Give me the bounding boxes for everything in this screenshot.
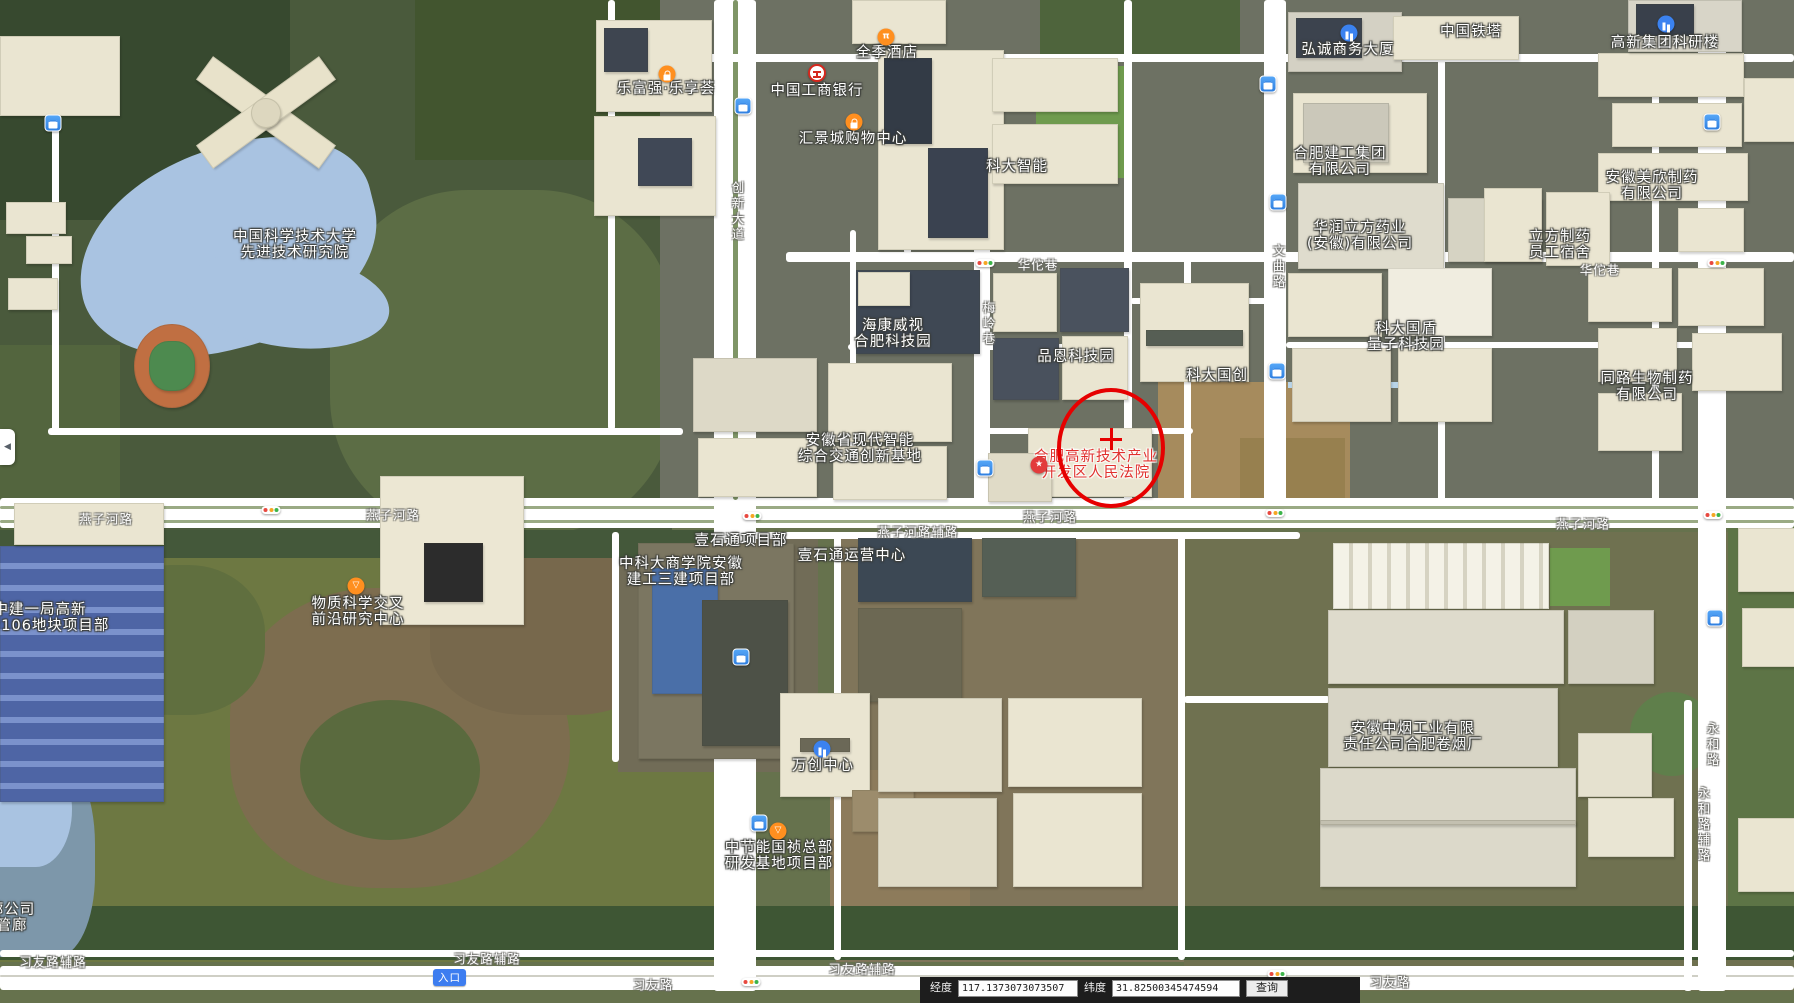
traffic-dot: [1706, 513, 1710, 517]
poi-label-gaoxin-research[interactable]: 高新集团科研楼: [1611, 36, 1720, 52]
building: [604, 28, 648, 72]
traffic-dot: [1717, 513, 1721, 517]
bus-stop-icon[interactable]: [1704, 114, 1721, 131]
poi-label-line: 乐富强·乐享荟: [617, 82, 716, 98]
road-label: 燕子河路: [366, 505, 420, 524]
traffic-dot: [989, 261, 993, 265]
flask-poi-icon[interactable]: ▽: [770, 823, 787, 840]
poi-label-line: (安徽)有限公司: [1307, 237, 1413, 253]
poi-label-zhongjian-project[interactable]: 中建一局高新202106地块项目部: [0, 603, 109, 634]
traffic-dot: [978, 261, 982, 265]
building: [858, 608, 962, 702]
building: [993, 273, 1057, 332]
bus-glyph: [1711, 615, 1720, 623]
road-label: 习友路: [1370, 972, 1411, 991]
road-label: 燕子河路: [79, 509, 133, 528]
traffic-dot: [745, 514, 749, 518]
shop-poi-icon[interactable]: [659, 66, 676, 83]
building: [1013, 793, 1142, 887]
bus-glyph: [1264, 81, 1273, 89]
coordinate-query-bar: 经度 纬度 查询: [920, 977, 1360, 1003]
building: [852, 0, 946, 44]
road-segment: [1684, 700, 1692, 991]
road-label: 习友路辅路: [19, 952, 87, 971]
poi-label-line: 科大国盾: [1367, 322, 1445, 338]
tower-glyph: [1346, 31, 1349, 39]
road-label: 习友路辅路: [828, 959, 896, 978]
bus-stop-icon[interactable]: [751, 815, 768, 832]
poi-label-line: 华润立方药业: [1307, 221, 1413, 237]
road-label: 燕子河路: [1556, 514, 1610, 533]
building: [993, 338, 1059, 400]
road-label: 燕子河路辅路: [877, 522, 958, 541]
building: [1588, 798, 1674, 857]
bag-handle: [665, 70, 671, 75]
building: [1598, 53, 1744, 97]
traffic-dot: [1273, 511, 1277, 515]
traffic-dot: [755, 980, 759, 984]
building: [982, 538, 1076, 597]
poi-label-line: 有限公司: [1294, 163, 1387, 179]
road-label-vertical: 梅岭巷: [979, 301, 998, 348]
traffic-dot: [983, 261, 987, 265]
traffic-dot: [1715, 261, 1719, 265]
bus-glyph: [1274, 199, 1283, 207]
bus-glyph: [49, 120, 58, 128]
poi-label-line: 海康威视: [854, 319, 932, 335]
poi-label-line: 壹石通项目部: [695, 534, 788, 550]
poi-label-line: 有限公司: [1601, 388, 1694, 404]
poi-label-keda-guochuang[interactable]: 科大国创: [1186, 369, 1248, 385]
poi-label-line: 安徽省现代智能: [798, 434, 922, 450]
poi-label-traffic-innovation-base[interactable]: 安徽省现代智能综合交通创新基地: [798, 434, 922, 465]
traffic-dot: [1268, 511, 1272, 515]
poi-label-line: 前沿研究中心: [312, 613, 405, 629]
road-segment: [48, 428, 683, 435]
poi-label-line: 先进技术研究院: [233, 246, 357, 262]
road-segment: [0, 966, 1794, 990]
building: [702, 600, 788, 746]
poi-label-line: 壹石通运营中心: [798, 549, 907, 565]
icbc-bank-icon[interactable]: [808, 64, 826, 82]
tower-glyph: [819, 747, 822, 755]
poi-label-line: 中国科学技术大学: [233, 230, 357, 246]
poi-label-line: 202106地块项目部: [0, 619, 109, 635]
bus-glyph: [737, 654, 746, 662]
poi-label-pinen-park[interactable]: 品恩科技园: [1037, 350, 1115, 366]
poi-label-ustc-institute[interactable]: 中国科学技术大学先进技术研究院: [233, 230, 357, 261]
traffic-light-icon: [976, 259, 995, 267]
poi-label-lefuqiang-plaza[interactable]: 乐富强·乐享荟: [617, 82, 716, 98]
tower-glyph: [1663, 22, 1666, 30]
poi-label-line: 建工三建项目部: [619, 573, 743, 589]
poi-label-yishitong-center[interactable]: 壹石通运营中心: [798, 549, 907, 565]
poi-label-line: 合肥科技园: [854, 335, 932, 351]
building: [1692, 333, 1782, 391]
road-label-vertical: 永和路: [1703, 722, 1722, 769]
bus-glyph: [981, 465, 990, 473]
building: [828, 363, 952, 442]
traffic-light-icon: [262, 506, 281, 514]
building: [878, 698, 1002, 792]
building: [0, 36, 120, 116]
building: [1578, 733, 1652, 797]
poi-label-hongcheng-tower[interactable]: 弘诚商务大厦: [1302, 43, 1395, 59]
panel-collapse-button[interactable]: ◀: [0, 429, 15, 465]
building: [1060, 268, 1129, 332]
building: [878, 798, 997, 887]
building-poi-icon[interactable]: [814, 741, 831, 758]
building: [1738, 818, 1794, 892]
traffic-light-icon: [1266, 509, 1285, 517]
collapse-arrow-icon: ◀: [4, 442, 11, 452]
poi-label-line: 责任公司合肥卷烟厂: [1343, 738, 1483, 754]
poi-label-line: 汇景城购物中心: [799, 132, 908, 148]
poi-label-line: 高新集团科研楼: [1611, 36, 1720, 52]
road-label: 华佗巷: [1018, 255, 1059, 274]
road-segment: [0, 950, 1794, 957]
building: [1292, 348, 1391, 422]
shop-poi-icon[interactable]: [846, 114, 863, 131]
poi-label-line: 中节能国祯总部: [725, 841, 834, 857]
building: [1742, 608, 1794, 667]
road-segment: [1178, 532, 1185, 960]
poi-label-line: 中国工商银行: [771, 84, 864, 100]
bus-stop-icon[interactable]: [1269, 363, 1286, 380]
traffic-dot: [1275, 972, 1279, 976]
traffic-light-icon: [743, 512, 762, 520]
poi-label-line: 万创中心: [792, 759, 854, 775]
building: [1744, 78, 1794, 142]
poi-label-line: 弘诚商务大厦: [1302, 43, 1395, 59]
building: [6, 202, 66, 234]
bus-stop-icon[interactable]: [1707, 610, 1724, 627]
poi-label-material-science-center[interactable]: 物质科学交叉前沿研究中心: [312, 597, 405, 628]
building-poi-icon[interactable]: [1341, 25, 1358, 42]
poi-label-hikvision-park[interactable]: 海康威视合肥科技园: [854, 319, 932, 350]
poi-label-line: 管廊: [0, 919, 35, 935]
building: [424, 543, 483, 602]
road-segment: [786, 252, 1794, 262]
bus-glyph: [755, 820, 764, 828]
map-app: { "map": { "poi_labels": [ {"name":"ustc…: [0, 0, 1794, 991]
poi-label-china-tower[interactable]: 中国铁塔: [1440, 25, 1502, 41]
bag-body: [851, 122, 858, 128]
poi-label-line: 中科大商学院安徽: [619, 557, 743, 573]
poi-label-tonglu-bio[interactable]: 同路生物制药有限公司: [1601, 372, 1694, 403]
longitude-input[interactable]: [958, 980, 1078, 997]
terrain-patch: [1550, 548, 1610, 606]
road-label-vertical: 创新大道: [728, 181, 747, 243]
poi-label-zhongjieneng-base[interactable]: 中节能国祯总部研发基地项目部: [725, 841, 834, 872]
traffic-dot: [269, 508, 273, 512]
road-label: 华佗巷: [1580, 260, 1621, 279]
poi-label-line: 品恩科技园: [1037, 350, 1115, 366]
bus-stop-icon[interactable]: [1270, 194, 1287, 211]
building: [251, 98, 281, 128]
traffic-light-icon: [1704, 511, 1723, 519]
poi-label-line: 研发基地项目部: [725, 857, 834, 873]
search-marker-cross: [1110, 428, 1113, 450]
traffic-dot: [1281, 972, 1285, 976]
poi-label-line: 有限公司: [1606, 187, 1699, 203]
traffic-dot: [1279, 511, 1283, 515]
building: [8, 278, 58, 310]
poi-label-ustc-business-school[interactable]: 中科大商学院安徽建工三建项目部: [619, 557, 743, 588]
building: [26, 236, 72, 264]
query-button[interactable]: 查询: [1246, 980, 1288, 997]
traffic-dot: [1270, 972, 1274, 976]
poi-label-line: 中建一局高新: [0, 603, 109, 619]
traffic-dot: [756, 514, 760, 518]
building: [1568, 610, 1654, 684]
traffic-light-icon: [1708, 259, 1727, 267]
bus-glyph: [739, 103, 748, 111]
traffic-dot: [264, 508, 268, 512]
latitude-input[interactable]: [1112, 980, 1240, 997]
building: [0, 546, 164, 802]
latitude-label: 纬度: [1084, 980, 1106, 996]
poi-label-wanchuang-center[interactable]: 万创中心: [792, 759, 854, 775]
building: [1678, 268, 1764, 326]
poi-label-huarun-pharma[interactable]: 华润立方药业(安徽)有限公司: [1307, 221, 1413, 252]
traffic-dot: [1711, 513, 1715, 517]
poi-label-line: 中国铁塔: [1440, 25, 1502, 41]
bus-stop-icon[interactable]: [733, 649, 750, 666]
bag-body: [664, 74, 671, 80]
building: [1328, 610, 1564, 684]
poi-label-line: 安徽美欣制药: [1606, 171, 1699, 187]
poi-label-meixin-pharma[interactable]: 安徽美欣制药有限公司: [1606, 171, 1699, 202]
building: [1612, 103, 1742, 147]
bus-stop-icon[interactable]: [735, 98, 752, 115]
entrance-badge: 入口: [433, 969, 466, 986]
building: [1008, 698, 1142, 787]
poi-label-huijing-mall[interactable]: 汇景城购物中心: [799, 132, 908, 148]
traffic-dot: [1710, 261, 1714, 265]
bag-handle: [852, 118, 858, 123]
longitude-label: 经度: [930, 980, 952, 996]
traffic-dot: [744, 980, 748, 984]
building: [992, 58, 1118, 112]
terrain-patch: [1040, 0, 1240, 58]
building: [858, 272, 910, 306]
building: [1320, 768, 1576, 887]
poi-label-line: 全季酒店: [856, 46, 918, 62]
poi-label-line: 科大智能: [986, 160, 1048, 176]
poi-label-hefei-construction[interactable]: 合肥建工集团有限公司: [1294, 147, 1387, 178]
building: [149, 341, 195, 391]
poi-label-line: 立方制药: [1529, 230, 1591, 246]
poi-label-line: 安徽中烟工业有限: [1343, 722, 1483, 738]
bus-stop-icon[interactable]: [977, 460, 994, 477]
poi-label-keda-intelligent[interactable]: 科大智能: [986, 160, 1048, 176]
building: [1678, 208, 1744, 252]
poi-label-lifang-dorm[interactable]: 立方制药员工宿舍: [1529, 230, 1591, 261]
building: [638, 138, 692, 186]
poi-label-guodun-quantum[interactable]: 科大国盾量子科技园: [1367, 322, 1445, 353]
poi-label-line: 物质科学交叉: [312, 597, 405, 613]
building: [1146, 330, 1243, 346]
road-segment: [0, 975, 1794, 977]
traffic-dot: [275, 508, 279, 512]
road-label: 习友路辅路: [453, 949, 521, 968]
traffic-dot: [749, 980, 753, 984]
poi-label-line: 员工宿舍: [1529, 246, 1591, 262]
traffic-dot: [750, 514, 754, 518]
poi-label-line: 合肥建工集团: [1294, 147, 1387, 163]
icbc-glyph: [813, 71, 821, 78]
poi-label-line: 廊公司: [0, 903, 35, 919]
building: [1333, 543, 1549, 609]
road-segment: [1184, 696, 1330, 703]
traffic-dot: [1721, 261, 1725, 265]
poi-label-line: 同路生物制药: [1601, 372, 1694, 388]
poi-label-line: 综合交通创新基地: [798, 450, 922, 466]
building: [1398, 348, 1492, 422]
bus-stop-icon[interactable]: [45, 115, 62, 132]
road-label-vertical: 永和路辅路: [1694, 786, 1713, 864]
flask-poi-icon[interactable]: ▽: [348, 578, 365, 595]
terrain-patch: [1240, 438, 1345, 506]
road-label-vertical: 文曲路: [1269, 244, 1288, 291]
poi-label-icbc-bank[interactable]: 中国工商银行: [771, 84, 864, 100]
terrain-patch: [300, 700, 480, 840]
road-label: 燕子河路: [1023, 507, 1077, 526]
court-star-icon[interactable]: ★: [1031, 457, 1048, 474]
poi-label-yishitong-project[interactable]: 壹石通项目部: [695, 534, 788, 550]
bus-glyph: [1273, 368, 1282, 376]
poi-label-line: 量子科技园: [1367, 338, 1445, 354]
poi-label-tobacco-factory[interactable]: 安徽中烟工业有限责任公司合肥卷烟厂: [1343, 722, 1483, 753]
building: [928, 148, 988, 238]
building-poi-icon[interactable]: [1658, 16, 1675, 33]
poi-label-pipe-company[interactable]: 廊公司管廊: [0, 903, 35, 934]
building: [1320, 820, 1576, 825]
poi-label-hotel-quanji[interactable]: 全季酒店: [856, 46, 918, 62]
traffic-light-icon: [742, 978, 761, 986]
road-segment: [612, 532, 619, 762]
poi-label-line: 科大国创: [1186, 369, 1248, 385]
bus-stop-icon[interactable]: [1260, 76, 1277, 93]
bus-glyph: [1708, 119, 1717, 127]
building: [693, 358, 817, 432]
hotel-poi-icon[interactable]: π: [878, 29, 895, 46]
building: [1738, 528, 1794, 592]
